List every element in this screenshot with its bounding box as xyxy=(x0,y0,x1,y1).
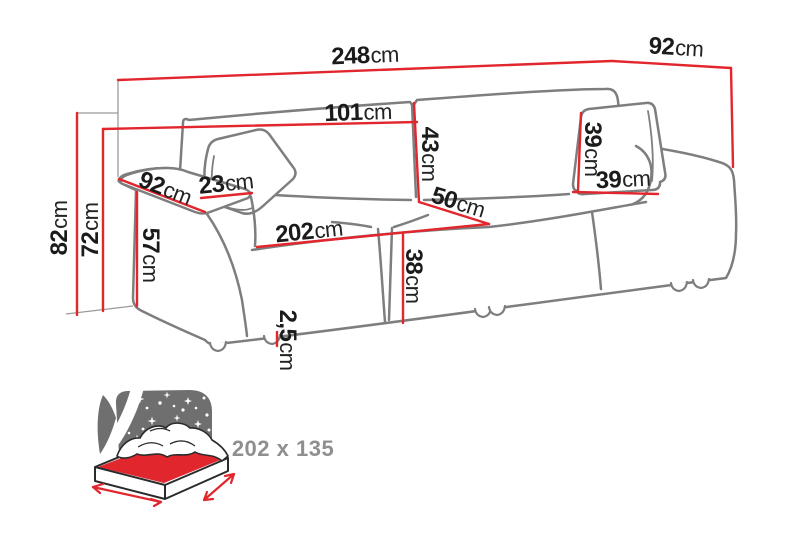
sofa-dimension-diagram: 248cm 92cm 101cm 43cm 39cm 39cm 92cm 23c… xyxy=(0,0,800,533)
sleeping-area-label: 202 x 135 xyxy=(232,436,334,462)
line-total-depth xyxy=(612,61,731,68)
line-back-right-edge xyxy=(731,68,733,167)
dim-back-width: 101cm xyxy=(324,100,392,126)
dim-armrest-height: 57cm xyxy=(138,228,162,283)
dim-total-height: 82cm xyxy=(48,201,72,256)
dim-total-depth: 92cm xyxy=(648,34,704,61)
dim-total-width: 248cm xyxy=(331,43,399,70)
dim-backrest-height: 72cm xyxy=(79,203,103,258)
dim-seat-height: 38cm xyxy=(401,249,425,304)
dim-pillow-width: 39cm xyxy=(595,167,651,194)
sleeper-bed-icon xyxy=(92,388,234,506)
dim-leg-height: 2,5cm xyxy=(275,310,299,371)
dim-back-cushion-height: 43cm xyxy=(417,127,441,182)
